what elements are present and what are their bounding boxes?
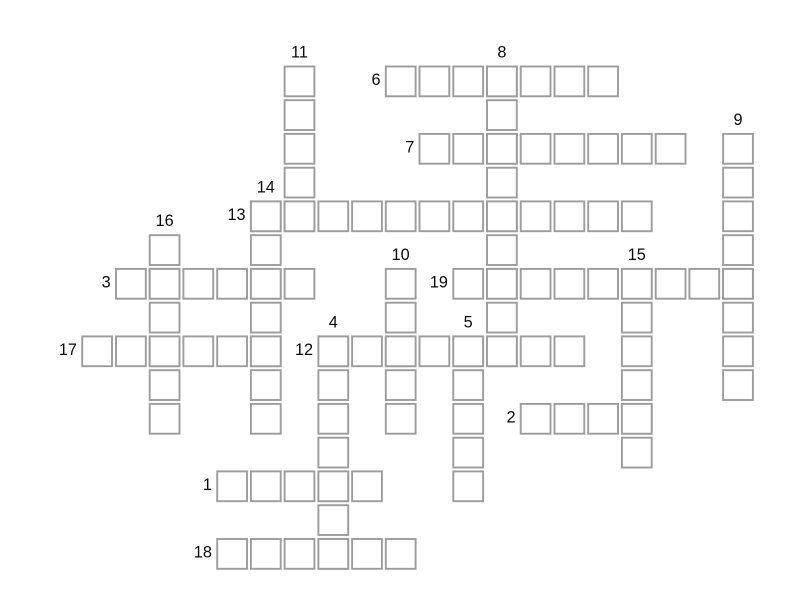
svg-text:4: 4 bbox=[329, 313, 338, 331]
svg-text:5: 5 bbox=[464, 313, 473, 331]
svg-text:17: 17 bbox=[59, 341, 77, 359]
svg-text:18: 18 bbox=[194, 544, 212, 562]
svg-text:13: 13 bbox=[227, 206, 245, 224]
svg-text:1: 1 bbox=[203, 476, 212, 494]
svg-text:6: 6 bbox=[372, 71, 381, 89]
svg-text:2: 2 bbox=[506, 409, 515, 427]
svg-text:3: 3 bbox=[102, 274, 111, 292]
svg-text:10: 10 bbox=[392, 246, 410, 264]
svg-text:19: 19 bbox=[430, 274, 448, 292]
svg-text:7: 7 bbox=[405, 139, 414, 157]
svg-text:9: 9 bbox=[733, 111, 742, 129]
svg-text:14: 14 bbox=[257, 178, 275, 196]
svg-text:11: 11 bbox=[291, 43, 308, 61]
svg-text:16: 16 bbox=[156, 212, 174, 230]
svg-text:15: 15 bbox=[628, 246, 646, 264]
svg-text:12: 12 bbox=[295, 341, 313, 359]
svg-text:8: 8 bbox=[497, 43, 506, 61]
